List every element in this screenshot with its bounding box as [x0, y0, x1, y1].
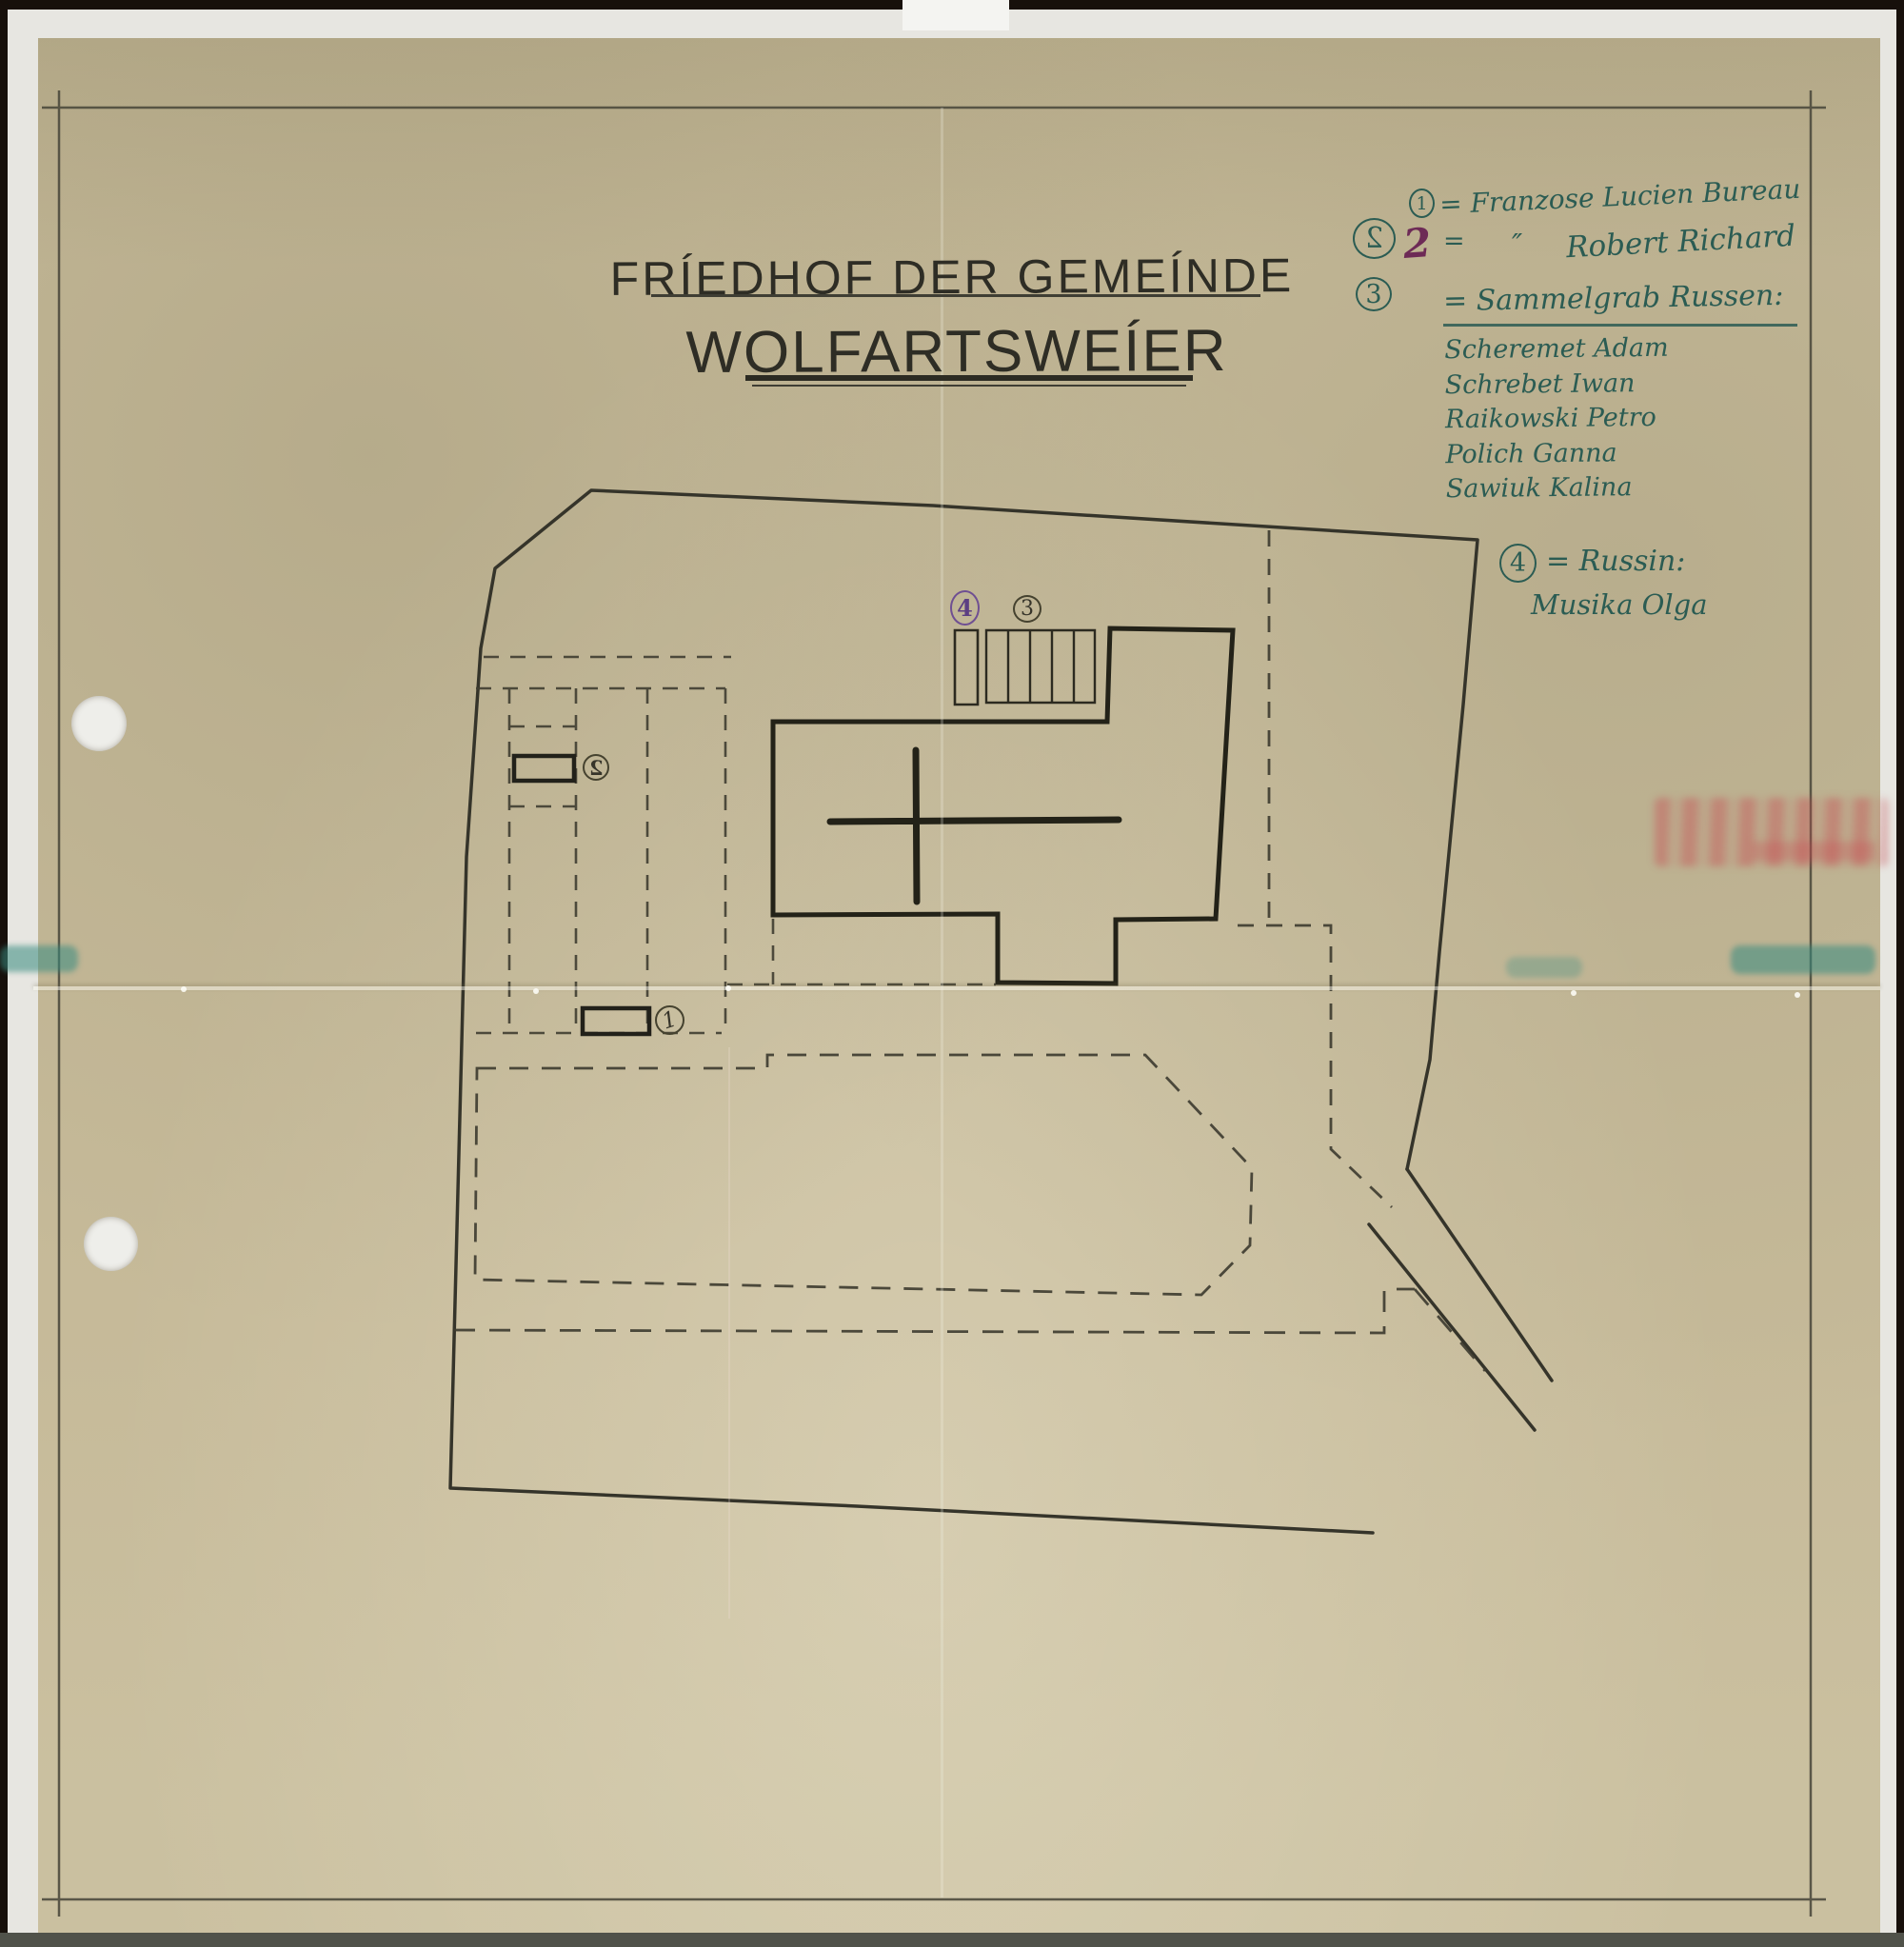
- title-underline-1: [651, 294, 1260, 297]
- plan-marker-4: 4: [957, 594, 973, 622]
- legend-number-2-circle: 2: [1353, 218, 1396, 259]
- plan-marker-3: 3: [1021, 597, 1034, 621]
- name-item: Polich Ganna: [1445, 435, 1670, 472]
- plan-marker-2: 2: [589, 756, 604, 780]
- name-item: Scheremet Adam: [1444, 331, 1669, 368]
- legend-number-1-circle: 1: [1409, 189, 1435, 218]
- grave-block-3: [986, 630, 1095, 703]
- crease-speck: [1795, 992, 1800, 998]
- scan-bottom-band: [0, 1933, 1904, 1947]
- legend-entry-3: = Sammelgrab Russen:: [1443, 279, 1784, 318]
- plan-marker-1: 1: [660, 1006, 681, 1034]
- teal-stain-right: [1731, 945, 1875, 974]
- teal-stain-mid: [1506, 957, 1582, 978]
- plan-marker-3-circle: 3: [1013, 595, 1041, 623]
- name-item: Sawiuk Kalina: [1446, 470, 1671, 507]
- faded-red-stamp-line2: [1752, 842, 1875, 861]
- grave-rect-2: [514, 756, 574, 781]
- legend-number-4: 4: [1510, 548, 1526, 578]
- plan-marker-2-circle: 2: [583, 754, 609, 781]
- legend-entry-4-name: Musika Olga: [1531, 588, 1708, 621]
- legend-number-1: 1: [1416, 193, 1427, 214]
- legend-number-3-circle: 3: [1356, 277, 1392, 311]
- legend-entry-2-equals: =: [1443, 227, 1465, 256]
- crease-speck: [725, 985, 731, 991]
- gate-path-lines: [1369, 1169, 1552, 1430]
- legend-number-4-circle: 4: [1499, 544, 1537, 583]
- crease-speck: [181, 986, 187, 992]
- crease-speck: [533, 988, 539, 994]
- name-item: Raikowski Petro: [1445, 401, 1670, 438]
- title-underline-2: [745, 375, 1193, 381]
- legend-number-2-overwrite: 2: [1401, 219, 1433, 268]
- lower-walk-dashed: [454, 1289, 1485, 1371]
- vertical-crease-faint: [728, 1047, 730, 1619]
- cemetery-boundary: [450, 490, 1478, 1533]
- plan-marker-1-circle: 1: [655, 1005, 684, 1035]
- punch-hole-top: [71, 696, 127, 751]
- legend-entry-2-ditto: ″: [1512, 228, 1522, 262]
- chapel-outline: [773, 628, 1233, 983]
- plan-marker-4-circle: 4: [950, 590, 980, 626]
- lower-field-dashed: [475, 1055, 1252, 1295]
- name-item: Schrebet Iwan: [1444, 366, 1669, 403]
- scanned-cemetery-plan: FRÍEDHOF DER GEMEÍNDE WOLFARTSWEÍER 1 = …: [0, 0, 1904, 1947]
- horizontal-fold-crease: [33, 986, 1880, 990]
- grave-strip-4: [955, 630, 978, 705]
- legend-entry-4: = Russin:: [1546, 545, 1685, 578]
- crease-speck: [1571, 990, 1577, 996]
- inner-dashed-boundary: [1238, 530, 1392, 1207]
- title-underline-2b: [752, 385, 1186, 387]
- legend-entry-3-underline: [1443, 324, 1797, 327]
- legend-number-3: 3: [1365, 280, 1381, 309]
- legend-number-2: 2: [1365, 222, 1383, 255]
- punch-hole-bottom: [84, 1217, 138, 1271]
- teal-stain-left: [0, 945, 78, 972]
- chapel-cross: [830, 750, 1119, 902]
- sammelgrab-name-list: Scheremet Adam Schrebet Iwan Raikowski P…: [1444, 331, 1670, 507]
- grave-rect-1: [583, 1008, 649, 1034]
- plan-title-line1: FRÍEDHOF DER GEMEÍNDE: [571, 248, 1333, 307]
